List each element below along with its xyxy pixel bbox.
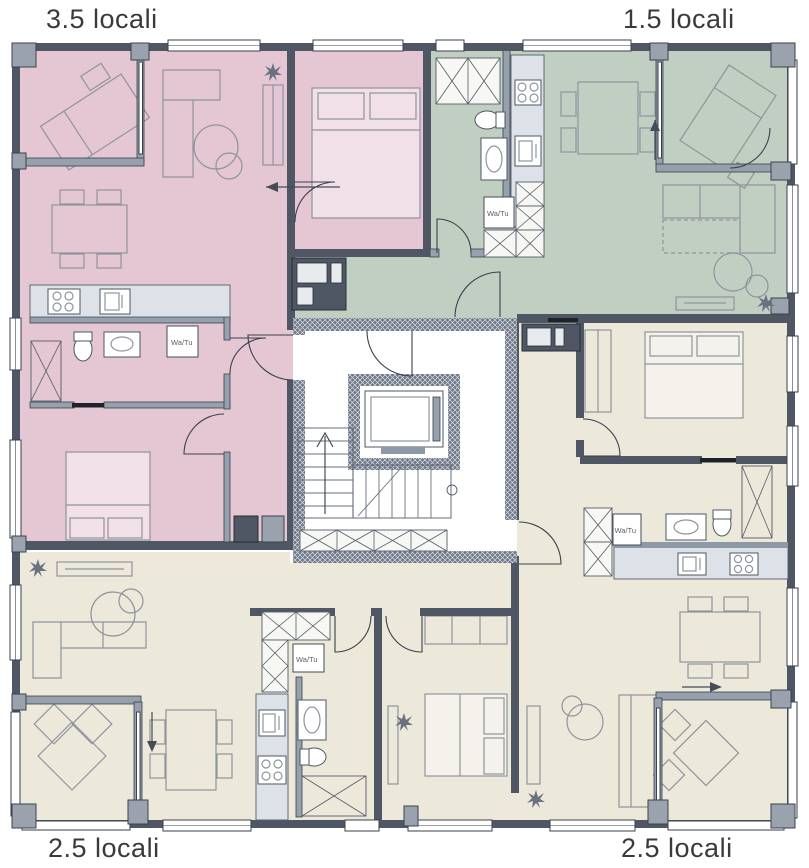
washer-dryer-label: Wa/Tu [171, 338, 193, 347]
shoe-cabinet [234, 516, 258, 542]
sink-icon [666, 514, 706, 540]
kitchen-bottom-right [614, 542, 788, 579]
kitchen-pink [30, 285, 230, 317]
floor-plan-drawing: Wa/Tu Wa/Tu Wa/Tu Wa/Tu [0, 0, 809, 868]
bed-double [425, 694, 507, 776]
sink-icon [298, 700, 326, 740]
stove-icon [258, 756, 286, 784]
bed-double [312, 88, 420, 218]
elevator [348, 374, 460, 470]
stove-icon [730, 553, 758, 575]
stove-icon [48, 289, 80, 314]
toilet-icon [475, 111, 499, 129]
washer-dryer-label: Wa/Tu [615, 526, 637, 535]
sink-icon [104, 332, 140, 357]
core-storage-boxes [300, 530, 447, 551]
sink-icon [481, 138, 507, 180]
washer-dryer-label: Wa/Tu [487, 209, 509, 218]
bed-double [645, 332, 743, 418]
sink-icon [678, 553, 706, 575]
floor-plan-page: 3.5 locali 1.5 locali 2.5 locali 2.5 loc… [0, 0, 809, 868]
washer-dryer-label: Wa/Tu [296, 655, 318, 664]
